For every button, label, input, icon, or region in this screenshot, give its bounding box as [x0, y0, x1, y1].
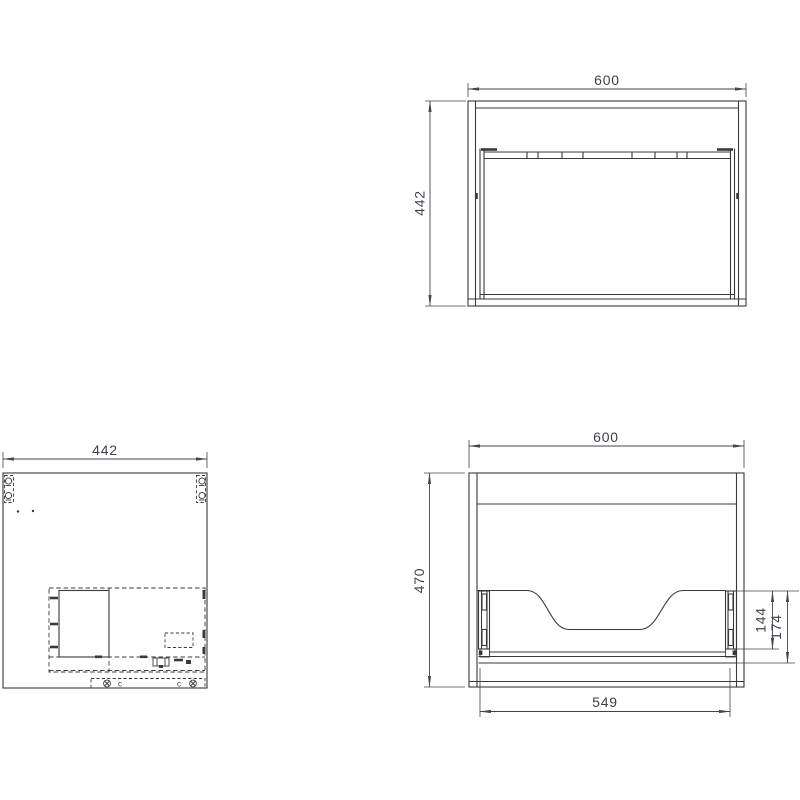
- slide-mark: [95, 656, 102, 659]
- pilot-hole-dot: [17, 510, 19, 512]
- rail-span-label: 549: [592, 694, 618, 710]
- back-view: 600 470 144 174 549: [411, 429, 799, 717]
- back-dim-width: 600: [469, 429, 744, 468]
- pilot-hole-dot: [32, 510, 34, 512]
- hidden-fitting-box: [165, 633, 193, 648]
- wall-bracket-left: [479, 591, 490, 657]
- fitting-mark-right: c: [177, 680, 181, 689]
- plan-hinge-fitting-right: [197, 476, 206, 503]
- front-view: 600 442: [412, 72, 747, 306]
- back-height-label: 470: [411, 568, 427, 594]
- bracket-height-label: 144: [753, 607, 769, 633]
- slide-mark: [140, 656, 147, 659]
- front-dim-height: 442: [412, 101, 467, 306]
- wall-bracket-right: [726, 591, 737, 657]
- bracket-total-label: 174: [768, 614, 784, 640]
- plan-bottom-fittings: c c: [91, 679, 205, 689]
- plan-bracket-detail: [153, 658, 191, 668]
- front-height-label: 442: [412, 190, 428, 216]
- back-carcass: [469, 473, 744, 687]
- plan-view: 442: [3, 442, 207, 689]
- plan-hidden-drawer: [49, 588, 206, 672]
- technical-drawing-canvas: 600 442 442: [0, 0, 800, 800]
- back-panel-cutout-curve: [477, 591, 726, 630]
- plan-hinge-fitting-left: [5, 476, 14, 503]
- front-cabinet-outline: [468, 101, 746, 306]
- back-dim-rail-span: 549: [480, 668, 730, 717]
- front-drawer-box: [480, 149, 735, 300]
- fitting-mark-left: c: [118, 680, 122, 689]
- back-width-label: 600: [593, 429, 619, 445]
- plan-panel-outline: [3, 473, 207, 688]
- back-cabinet-outline: [469, 473, 744, 687]
- front-width-label: 600: [594, 72, 620, 88]
- plan-dim-depth: 442: [3, 442, 207, 468]
- back-hanging-rail: [479, 652, 737, 663]
- front-carcass: [468, 101, 746, 306]
- back-dim-height: 470: [411, 473, 465, 687]
- front-drawer-top-rail: [484, 152, 731, 159]
- front-dim-width: 600: [468, 72, 746, 97]
- plan-depth-label: 442: [92, 442, 118, 458]
